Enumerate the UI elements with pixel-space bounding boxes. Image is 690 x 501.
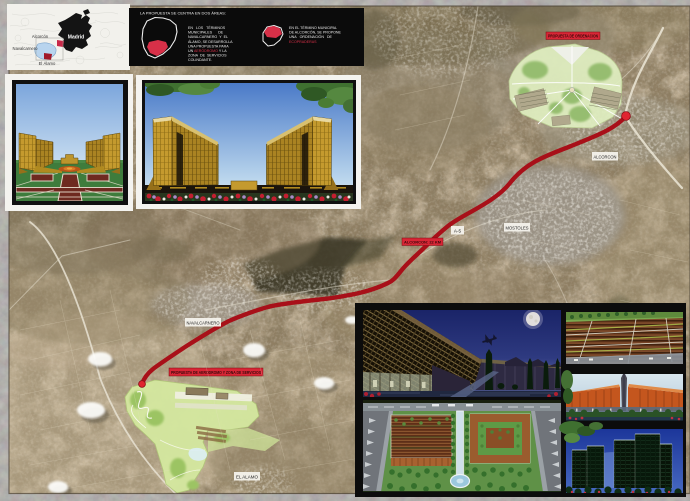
svg-text:PROPUESTA DE AERODROMO Y ZONA: PROPUESTA DE AERODROMO Y ZONA DE SERVICI… <box>171 370 261 375</box>
svg-text:ECOPRADERAS: ECOPRADERAS <box>289 40 317 44</box>
svg-text:DE ALCORCÓN, SE PROPONE: DE ALCORCÓN, SE PROPONE <box>289 30 342 35</box>
svg-text:MUNICIPALES DE: MUNICIPALES DE <box>188 31 224 35</box>
svg-text:UNA ORDENACIÓN DE: UNA ORDENACIÓN DE <box>289 34 333 39</box>
svg-text:ALCORCON: 22 KM: ALCORCON: 22 KM <box>404 239 442 244</box>
svg-text:PROPUESTA DE ORDENACION: PROPUESTA DE ORDENACION <box>548 34 598 39</box>
svg-text:EN LOS TÉRMINOS: EN LOS TÉRMINOS <box>188 25 226 30</box>
svg-text:ALCORCON: ALCORCON <box>594 154 617 159</box>
svg-text:Navalcarnero: Navalcarnero <box>13 46 39 51</box>
svg-text:EL ALAMO: EL ALAMO <box>236 474 258 479</box>
svg-text:El Álamo: El Álamo <box>39 61 56 66</box>
svg-text:UN AERÓDROMO Y LA: UN AERÓDROMO Y LA <box>188 48 227 53</box>
svg-text:ZONA DE SERVICIOS: ZONA DE SERVICIOS <box>188 54 227 58</box>
svg-text:NAVALCARNERO Y EL: NAVALCARNERO Y EL <box>188 35 228 39</box>
svg-text:A-5: A-5 <box>454 228 462 233</box>
svg-text:Madrid: Madrid <box>68 35 84 41</box>
svg-text:ÁLAMO, SE DESARROLLA: ÁLAMO, SE DESARROLLA <box>188 40 233 44</box>
svg-text:EN EL TÉRMINO MUNICIPAL: EN EL TÉRMINO MUNICIPAL <box>289 25 337 30</box>
svg-text:LA PROPUESTA SE CENTRA EN DOS: LA PROPUESTA SE CENTRA EN DOS ÁREAS: <box>140 11 226 16</box>
svg-text:COLINDANTE.: COLINDANTE. <box>188 58 212 62</box>
svg-text:MOSTOLES: MOSTOLES <box>506 225 529 230</box>
svg-text:Alcorcón: Alcorcón <box>32 34 49 39</box>
svg-text:UNA PROPUESTA PARA: UNA PROPUESTA PARA <box>188 44 229 48</box>
svg-text:NAVALCARNERO: NAVALCARNERO <box>187 320 220 325</box>
